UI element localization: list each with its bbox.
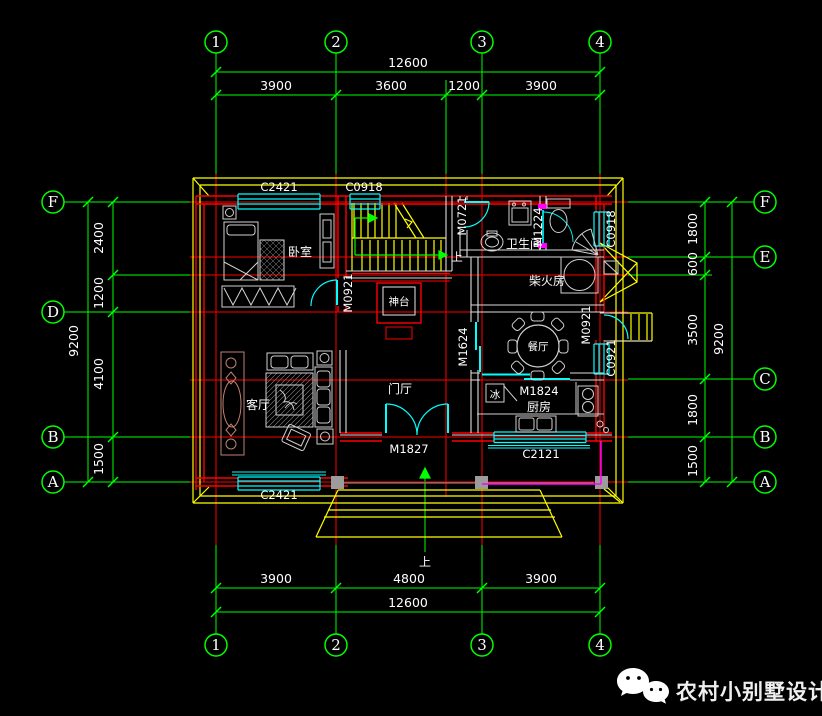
axis-bubbles: 1 2 3 4 1 2 3 4 F D B A F E C B A	[42, 31, 776, 656]
dim-top-seg-0: 3900	[260, 78, 292, 93]
axis-bubble-bottom-4: 4	[595, 636, 605, 654]
dim-right-seg-3: 1800	[685, 394, 700, 426]
axis-bubble-right-f: F	[760, 193, 770, 211]
room-label-kitchen: 厨房	[527, 399, 551, 414]
axis-bubble-top-4: 4	[595, 33, 605, 51]
entry-up-label: 上	[419, 555, 431, 569]
axis-bubble-bottom-1: 1	[211, 636, 221, 654]
dim-left-seg-0: 2400	[91, 222, 106, 254]
axis-bubble-top-3: 3	[477, 33, 487, 51]
dim-bottom-seg-2: 3900	[525, 571, 557, 586]
dimension-ticks	[83, 67, 737, 617]
opening-label-m1824: M1824	[519, 384, 558, 398]
dim-top-seg-1: 3600	[375, 78, 407, 93]
room-label-foyer: 门厅	[388, 381, 412, 396]
stair-up-label: 上	[451, 250, 463, 264]
opening-label-m0921-right: M0921	[579, 305, 593, 344]
dresser	[320, 214, 334, 268]
opening-label-c2421-top: C2421	[260, 180, 297, 194]
opening-label-m0721: M0721	[455, 196, 469, 235]
red-grid-lines	[190, 174, 628, 545]
axis-bubble-left-d: D	[47, 303, 59, 321]
opening-label-m1827: M1827	[389, 442, 428, 456]
axis-bubble-left-b: B	[47, 428, 58, 446]
axis-bubble-bottom-3: 3	[477, 636, 487, 654]
axis-bubble-bottom-2: 2	[331, 636, 341, 654]
axis-bubble-right-b: B	[759, 428, 770, 446]
axis-bubble-right-e: E	[760, 248, 771, 266]
room-label-dining: 餐厅	[528, 340, 549, 353]
dim-right-seg-4: 1500	[685, 445, 700, 477]
dim-left-seg-1: 1200	[91, 277, 106, 309]
room-label-bedroom: 卧室	[288, 244, 312, 259]
floorplan-canvas: 1 2 3 4 1 2 3 4 F D B A F E C B A 12600 …	[0, 0, 822, 716]
living-side-cabinet	[221, 352, 244, 455]
dim-bottom-seg-1: 4800	[393, 571, 425, 586]
opening-label-c0921: C0921	[604, 339, 618, 376]
brand-footer: 农村小别墅设计	[617, 668, 822, 704]
opening-label-c2421-bottom: C2421	[260, 488, 297, 502]
axis-bubble-right-a: A	[759, 473, 771, 491]
axis-bubble-left-f: F	[48, 193, 58, 211]
dim-right-total: 9200	[711, 323, 726, 355]
opening-label-c0918-top: C0918	[345, 180, 382, 194]
axis-bubble-top-2: 2	[331, 33, 341, 51]
dim-top-total: 12600	[388, 55, 428, 70]
room-label-firewood: 柴火房	[529, 273, 565, 288]
opening-labels: C2421 C0918 M0721 M1224 C0918 M0921 M162…	[260, 180, 618, 502]
axis-bubble-right-c: C	[759, 370, 770, 388]
opening-label-m1224: M1224	[531, 207, 545, 246]
wardrobe	[222, 286, 296, 307]
dim-right-seg-1: 600	[685, 252, 700, 276]
wechat-icon	[617, 668, 669, 704]
sofa-set	[266, 351, 333, 451]
axis-grid-lines	[64, 53, 754, 634]
dim-top-seg-2: 1200	[448, 78, 480, 93]
walk-lines	[355, 214, 447, 478]
brand-text: 农村小别墅设计	[675, 680, 822, 704]
dim-right-seg-2: 3500	[685, 314, 700, 346]
dim-left-total: 9200	[66, 325, 81, 357]
room-label-fridge: 冰	[490, 388, 501, 401]
bed	[223, 206, 284, 280]
opening-label-c0918-right: C0918	[604, 210, 618, 247]
room-label-altar: 神台	[389, 295, 410, 308]
room-label-living: 客厅	[246, 397, 270, 412]
dim-top-seg-3: 3900	[525, 78, 557, 93]
opening-label-c2121: C2121	[522, 447, 559, 461]
axis-bubble-top-1: 1	[211, 33, 221, 51]
dim-left-seg-2: 4100	[91, 358, 106, 390]
opening-label-m1624: M1624	[456, 327, 470, 366]
opening-label-m0921-bedroom: M0921	[341, 273, 355, 312]
dim-bottom-seg-0: 3900	[260, 571, 292, 586]
dim-right-seg-0: 1800	[685, 213, 700, 245]
dim-left-seg-3: 1500	[91, 443, 106, 475]
dim-bottom-total: 12600	[388, 595, 428, 610]
axis-bubble-left-a: A	[47, 473, 59, 491]
